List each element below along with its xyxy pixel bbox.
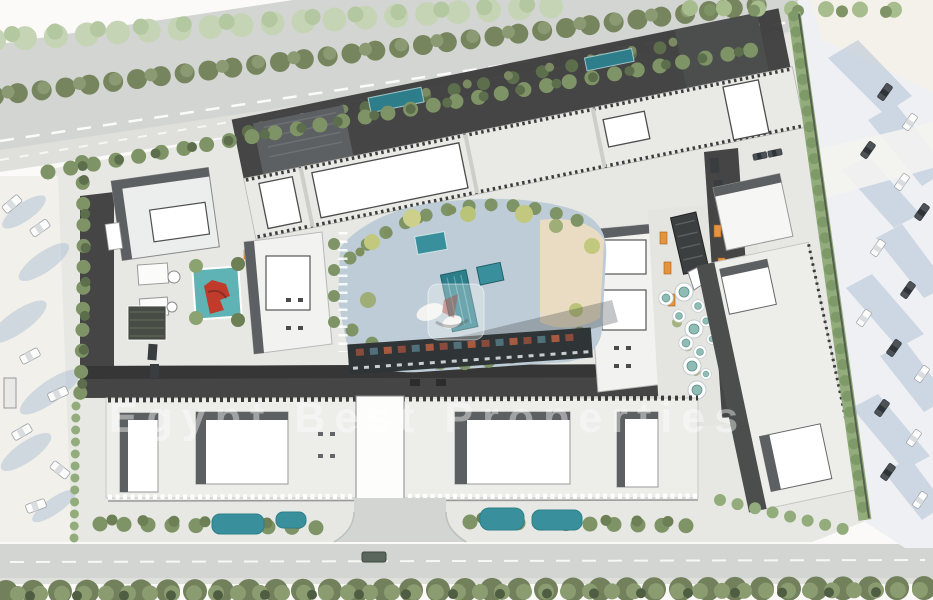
pergola bbox=[128, 306, 166, 340]
roof-vent bbox=[318, 454, 323, 458]
pond bbox=[276, 512, 306, 528]
site-plan-canvas: Egypt Best Properties bbox=[0, 0, 933, 600]
truck bbox=[710, 158, 720, 174]
roof-vent bbox=[614, 364, 619, 368]
tree bbox=[189, 311, 203, 325]
service-truck bbox=[150, 364, 159, 378]
tree bbox=[515, 205, 533, 223]
service-truck bbox=[147, 344, 157, 361]
parked-car bbox=[436, 379, 446, 386]
masterplan-image: Egypt Best Properties bbox=[0, 0, 933, 600]
roof-vent bbox=[626, 346, 631, 350]
roof-vent bbox=[298, 326, 303, 330]
roof-vent bbox=[626, 364, 631, 368]
tree bbox=[231, 313, 245, 327]
tree bbox=[364, 234, 380, 250]
tree bbox=[584, 238, 600, 254]
roof-panel bbox=[600, 240, 646, 274]
tree bbox=[460, 206, 476, 222]
umbrella bbox=[168, 271, 180, 283]
parked-car bbox=[410, 379, 420, 386]
roof-vent bbox=[330, 454, 335, 458]
watermark-text: Egypt Best Properties bbox=[109, 394, 747, 442]
bus bbox=[4, 378, 16, 408]
tree bbox=[360, 292, 376, 308]
pond bbox=[532, 510, 582, 530]
umbrella bbox=[167, 302, 177, 312]
south-road bbox=[0, 544, 933, 596]
pond bbox=[212, 514, 264, 534]
car-on-road bbox=[362, 552, 386, 562]
tree bbox=[189, 259, 203, 273]
watermark-logo bbox=[428, 284, 484, 340]
tree bbox=[549, 219, 563, 233]
center-west-building bbox=[244, 232, 332, 354]
playground bbox=[189, 257, 245, 327]
tree bbox=[403, 209, 421, 227]
roof-vent bbox=[286, 298, 291, 302]
roof-vent bbox=[286, 326, 291, 330]
roof-vent bbox=[298, 298, 303, 302]
cafe-shed bbox=[137, 263, 168, 285]
pond bbox=[480, 508, 524, 530]
roof-vent bbox=[614, 346, 619, 350]
tree bbox=[231, 257, 245, 271]
